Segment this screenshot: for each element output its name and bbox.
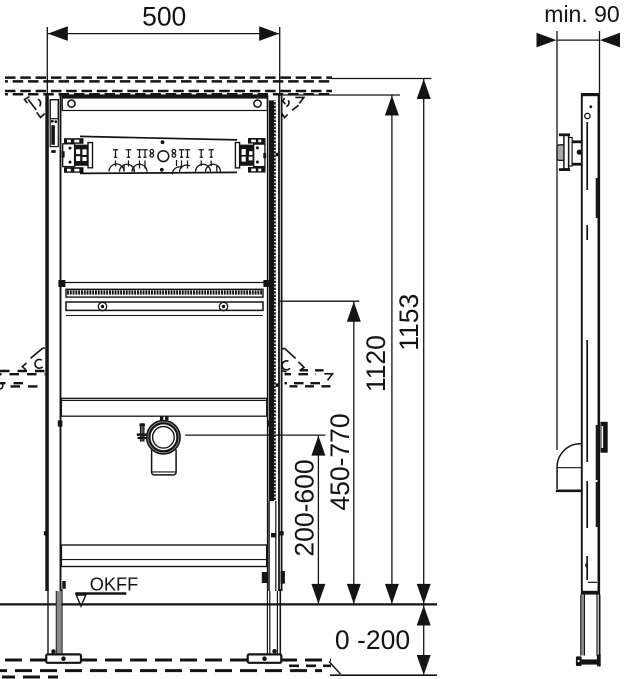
svg-text:min. 90: min. 90 — [544, 1, 619, 27]
svg-text:200-600: 200-600 — [289, 459, 319, 556]
svg-text:450-770: 450-770 — [325, 413, 355, 510]
svg-text:0 -200: 0 -200 — [335, 625, 410, 655]
svg-text:500: 500 — [142, 1, 186, 31]
svg-text:1153: 1153 — [394, 294, 424, 351]
svg-text:OKFF: OKFF — [90, 575, 139, 595]
svg-text:1120: 1120 — [361, 335, 391, 392]
